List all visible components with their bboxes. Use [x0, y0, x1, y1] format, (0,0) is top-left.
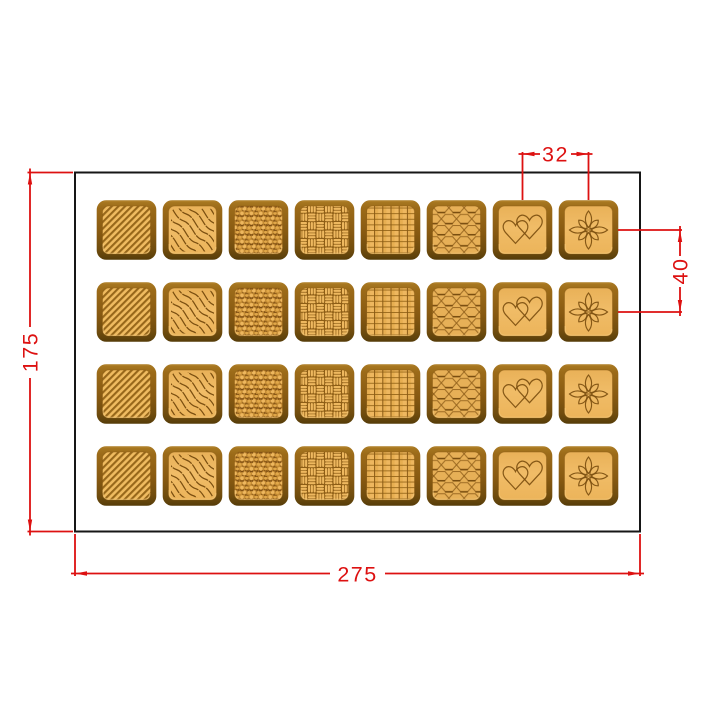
svg-text:275: 275 — [337, 563, 377, 587]
svg-text:32: 32 — [542, 143, 569, 167]
svg-text:175: 175 — [19, 332, 43, 372]
svg-text:40: 40 — [669, 258, 693, 285]
